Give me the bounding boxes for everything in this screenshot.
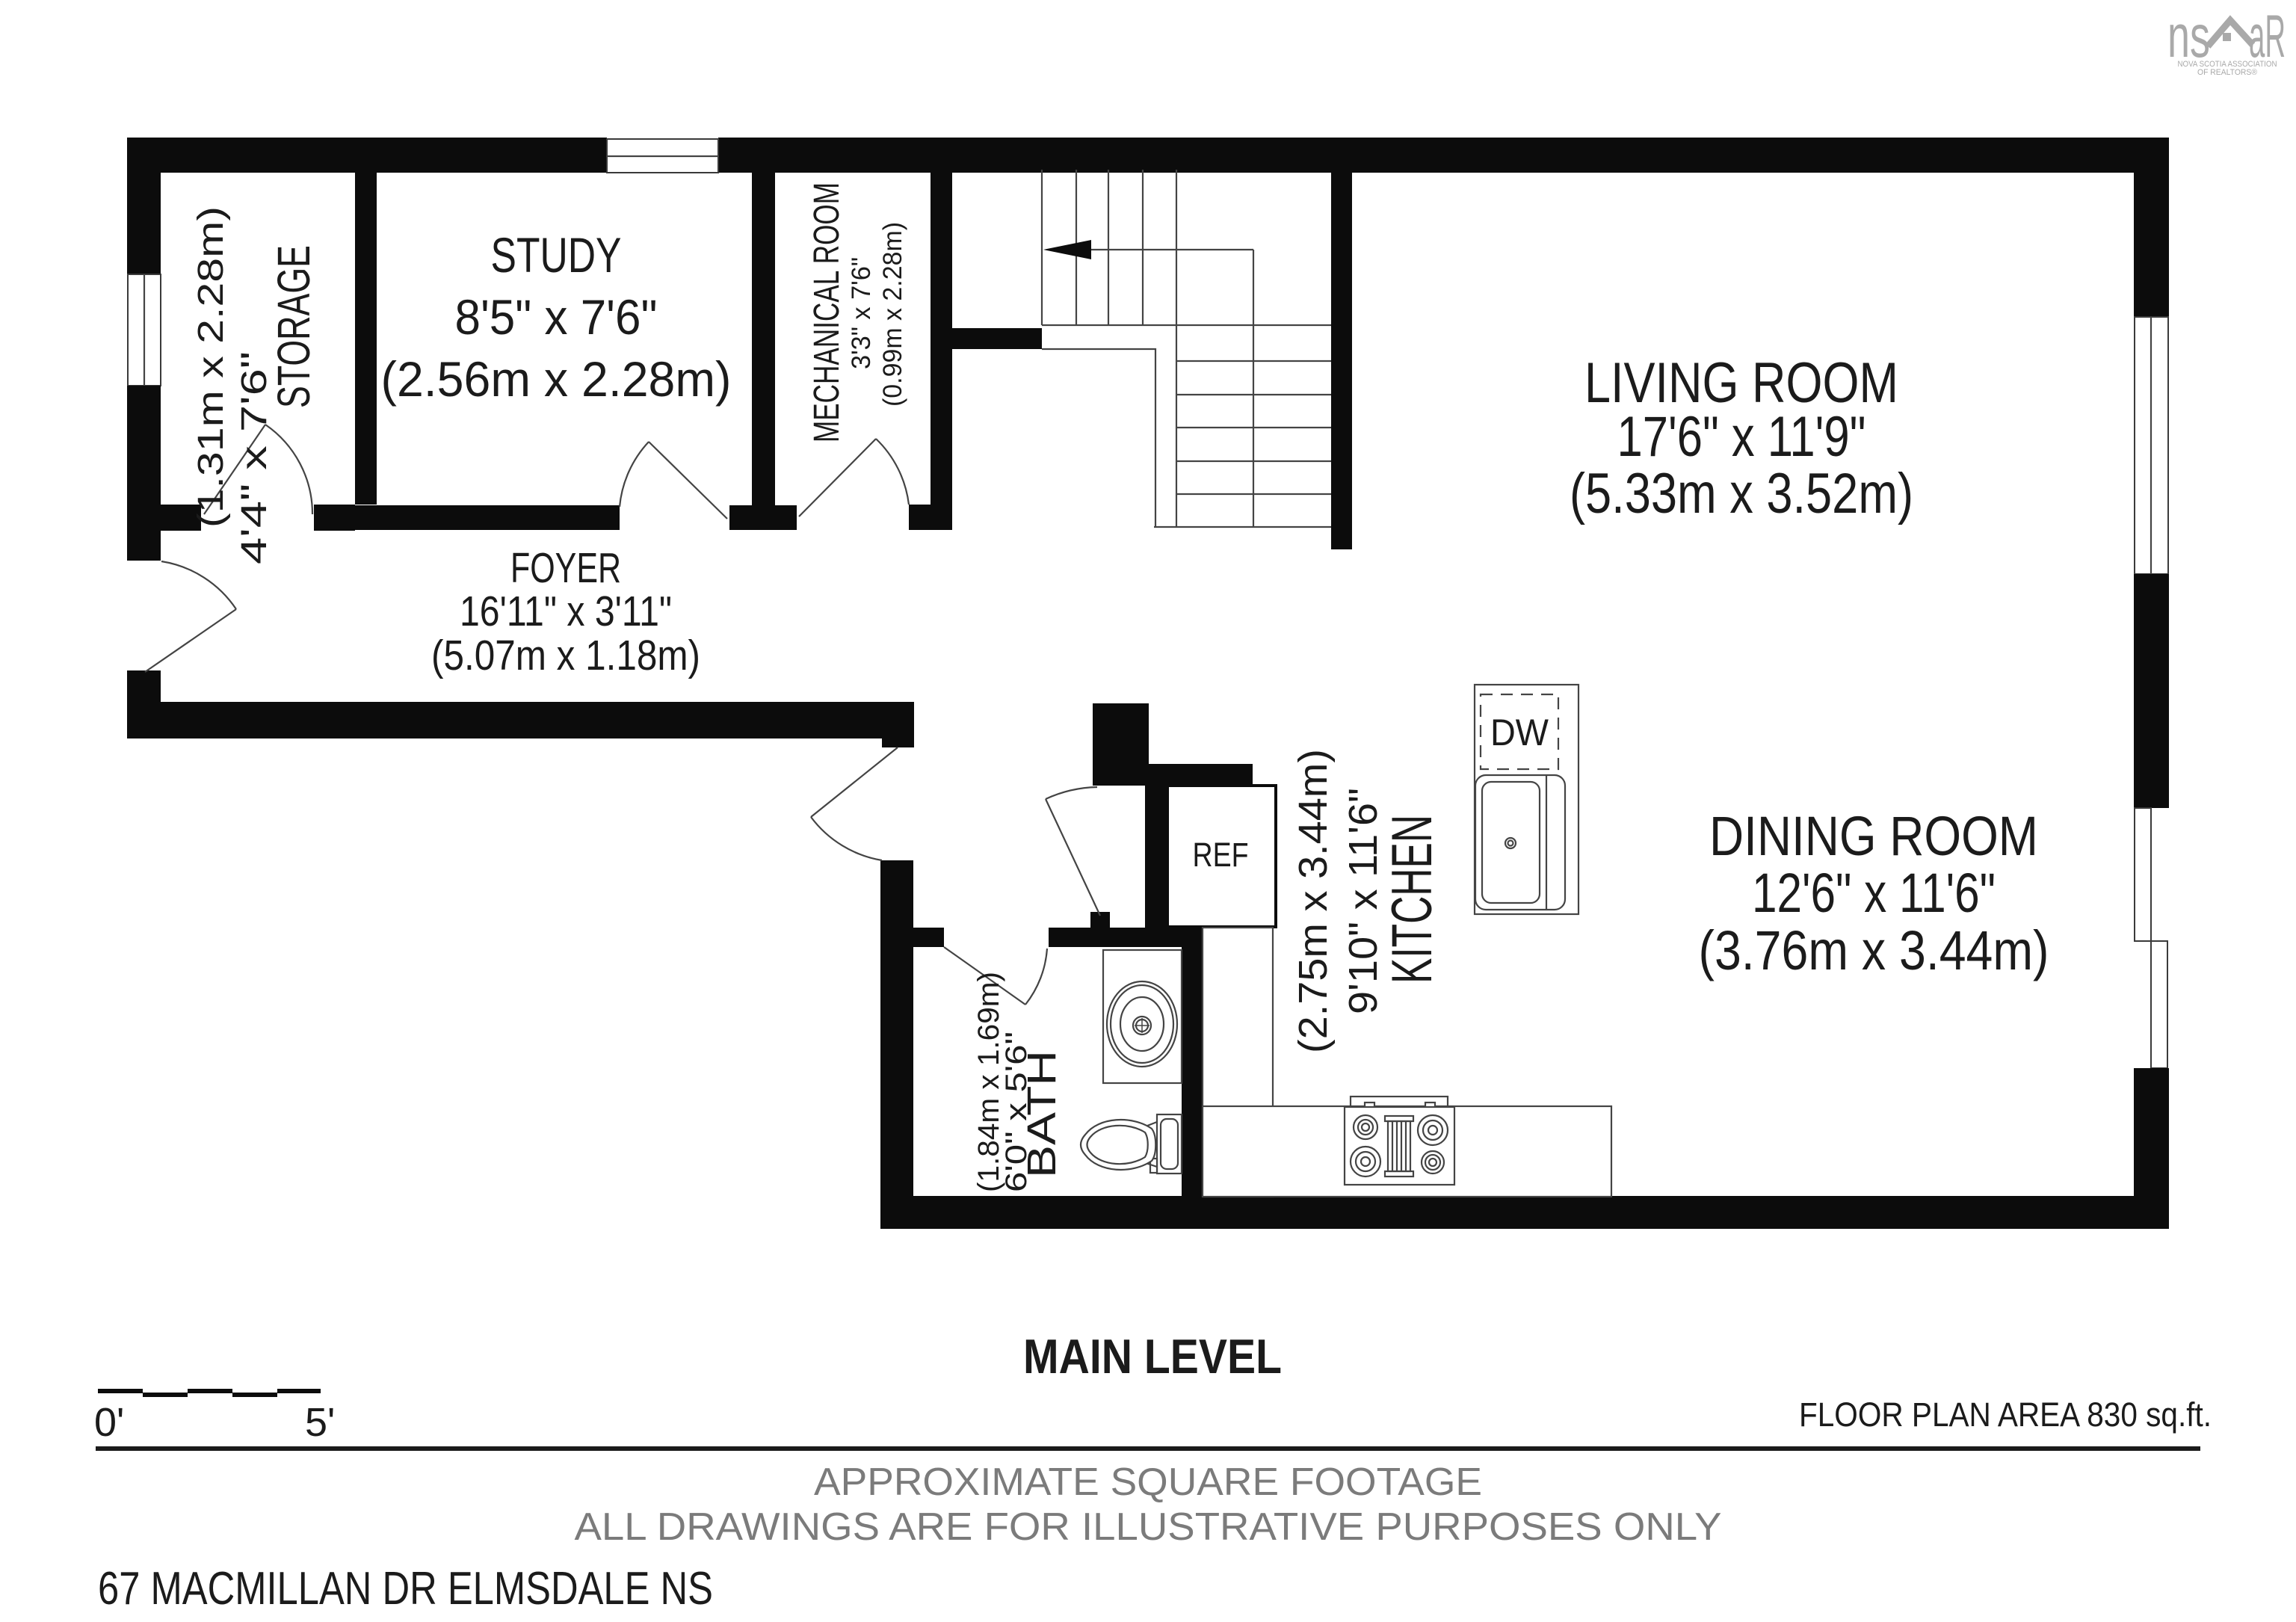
- svg-text:FLOOR PLAN AREA 830 sq.ft.: FLOOR PLAN AREA 830 sq.ft.: [1799, 1396, 2212, 1434]
- svg-text:MECHANICAL ROOM: MECHANICAL ROOM: [807, 182, 847, 442]
- svg-text:APPROXIMATE SQUARE FOOTAGE: APPROXIMATE SQUARE FOOTAGE: [814, 1461, 1482, 1504]
- svg-text:(1.31m x 2.28m): (1.31m x 2.28m): [191, 206, 231, 528]
- svg-text:3'3" x 7'6": 3'3" x 7'6": [847, 257, 876, 369]
- svg-text:DINING ROOM: DINING ROOM: [1709, 805, 2038, 867]
- svg-text:8'5" x 7'6": 8'5" x 7'6": [455, 289, 658, 345]
- svg-text:9'10" x 11'6": 9'10" x 11'6": [1341, 788, 1386, 1014]
- svg-text:16'11" x 3'11": 16'11" x 3'11": [460, 588, 672, 635]
- svg-text:MAIN LEVEL: MAIN LEVEL: [1023, 1329, 1282, 1384]
- svg-text:(2.75m x 3.44m): (2.75m x 3.44m): [1291, 749, 1336, 1053]
- svg-text:5': 5': [305, 1400, 335, 1445]
- svg-text:(5.07m x 1.18m): (5.07m x 1.18m): [431, 632, 700, 679]
- svg-text:(3.76m x 3.44m): (3.76m x 3.44m): [1699, 919, 2049, 981]
- svg-text:(0.99m x 2.28m): (0.99m x 2.28m): [878, 222, 907, 407]
- svg-text:17'6" x 11'9": 17'6" x 11'9": [1617, 405, 1866, 469]
- svg-text:0': 0': [94, 1400, 124, 1445]
- svg-text:OF REALTORS®: OF REALTORS®: [2197, 68, 2257, 77]
- svg-text:ALL DRAWINGS ARE FOR ILLUSTRAT: ALL DRAWINGS ARE FOR ILLUSTRATIVE PURPOS…: [575, 1505, 1722, 1549]
- svg-text:67 MACMILLAN DR ELMSDALE NS: 67 MACMILLAN DR ELMSDALE NS: [98, 1563, 713, 1615]
- svg-text:(2.56m x 2.28m): (2.56m x 2.28m): [381, 351, 732, 407]
- svg-text:FOYER: FOYER: [510, 544, 621, 592]
- svg-text:STUDY: STUDY: [491, 227, 622, 283]
- svg-text:DW: DW: [1490, 712, 1549, 753]
- svg-text:4'4" x 7'6": 4'4" x 7'6": [235, 351, 274, 564]
- svg-text:12'6" x 11'6": 12'6" x 11'6": [1752, 862, 1996, 924]
- svg-text:KITCHEN: KITCHEN: [1380, 815, 1444, 984]
- svg-text:STORAGE: STORAGE: [268, 245, 319, 408]
- svg-text:(5.33m x 3.52m): (5.33m x 3.52m): [1570, 462, 1913, 525]
- svg-text:(1.84m x 1.69m): (1.84m x 1.69m): [972, 972, 1005, 1192]
- svg-text:REF: REF: [1193, 836, 1249, 874]
